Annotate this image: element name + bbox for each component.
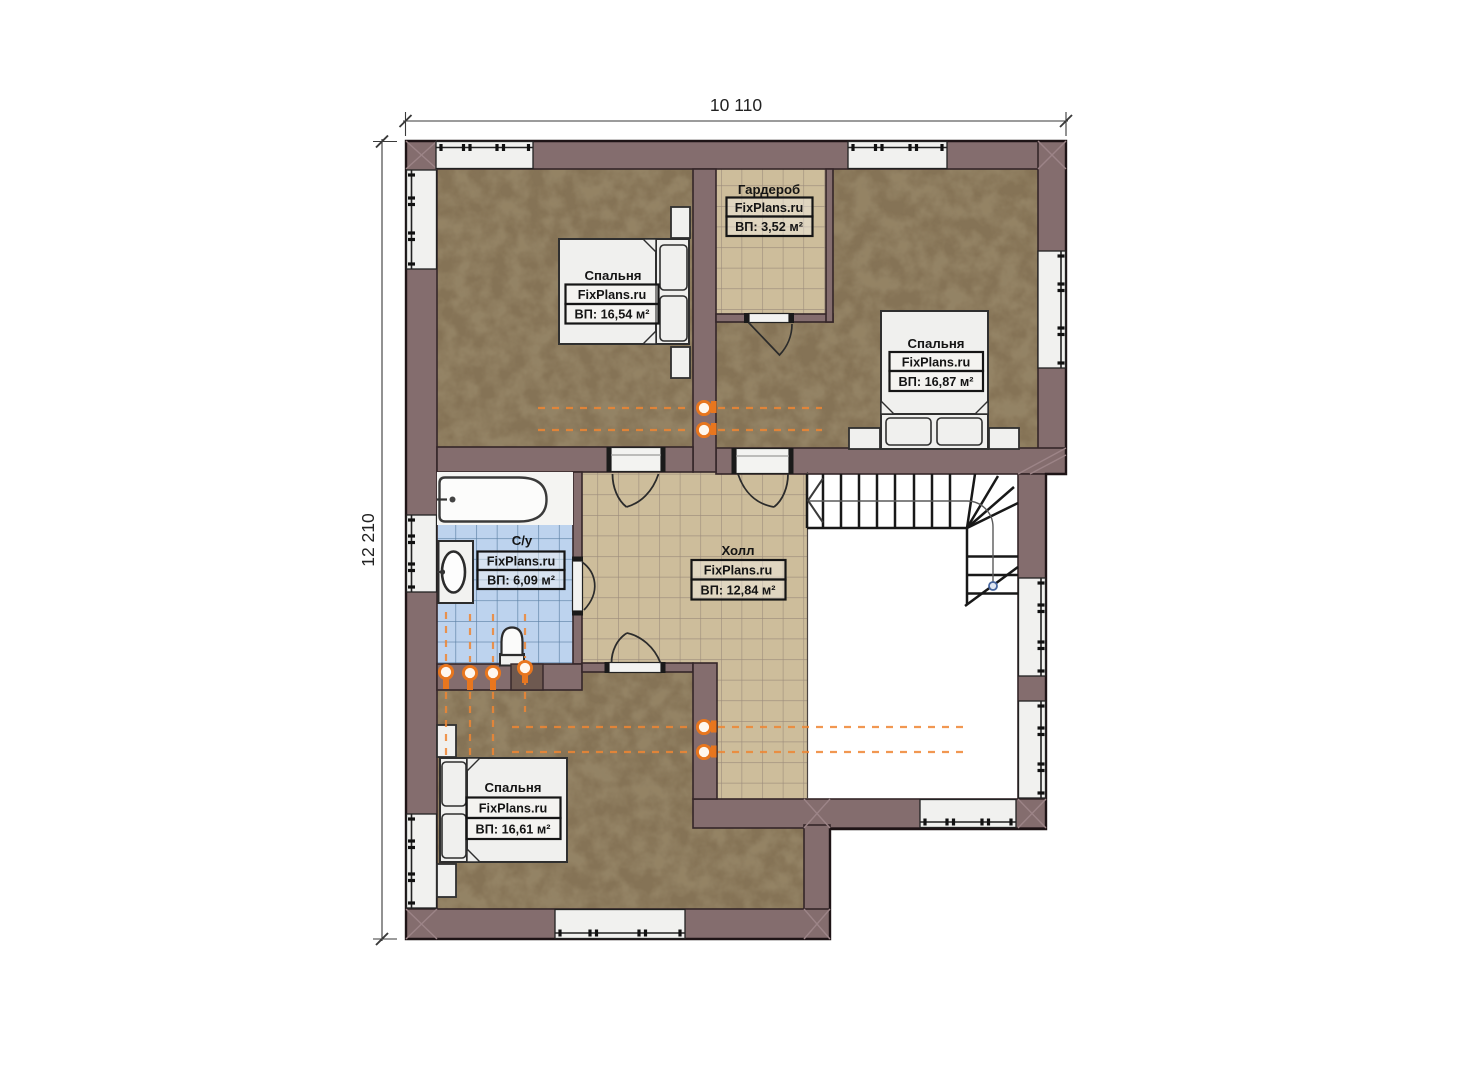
svg-text:ВП: 16,87 м²: ВП: 16,87 м²: [899, 375, 974, 389]
svg-text:ВП: 3,52 м²: ВП: 3,52 м²: [735, 220, 803, 234]
svg-text:Спальня: Спальня: [908, 336, 965, 351]
svg-text:FixPlans.ru: FixPlans.ru: [479, 802, 547, 816]
svg-text:Гардероб: Гардероб: [738, 182, 800, 197]
svg-text:FixPlans.ru: FixPlans.ru: [487, 555, 555, 569]
svg-text:12 210: 12 210: [358, 513, 378, 567]
svg-text:Спальня: Спальня: [485, 780, 542, 795]
svg-text:С/у: С/у: [512, 533, 533, 548]
svg-text:Спальня: Спальня: [585, 268, 642, 283]
svg-text:ВП: 12,84 м²: ВП: 12,84 м²: [701, 584, 776, 598]
svg-text:10 110: 10 110: [710, 95, 762, 115]
svg-text:Холл: Холл: [721, 543, 754, 558]
svg-text:FixPlans.ru: FixPlans.ru: [902, 356, 970, 370]
svg-text:ВП: 16,54 м²: ВП: 16,54 м²: [575, 308, 650, 322]
svg-text:FixPlans.ru: FixPlans.ru: [704, 564, 772, 578]
svg-text:ВП: 6,09 м²: ВП: 6,09 м²: [487, 574, 555, 588]
svg-text:FixPlans.ru: FixPlans.ru: [735, 201, 803, 215]
svg-text:FixPlans.ru: FixPlans.ru: [578, 288, 646, 302]
svg-text:ВП: 16,61 м²: ВП: 16,61 м²: [476, 823, 551, 837]
